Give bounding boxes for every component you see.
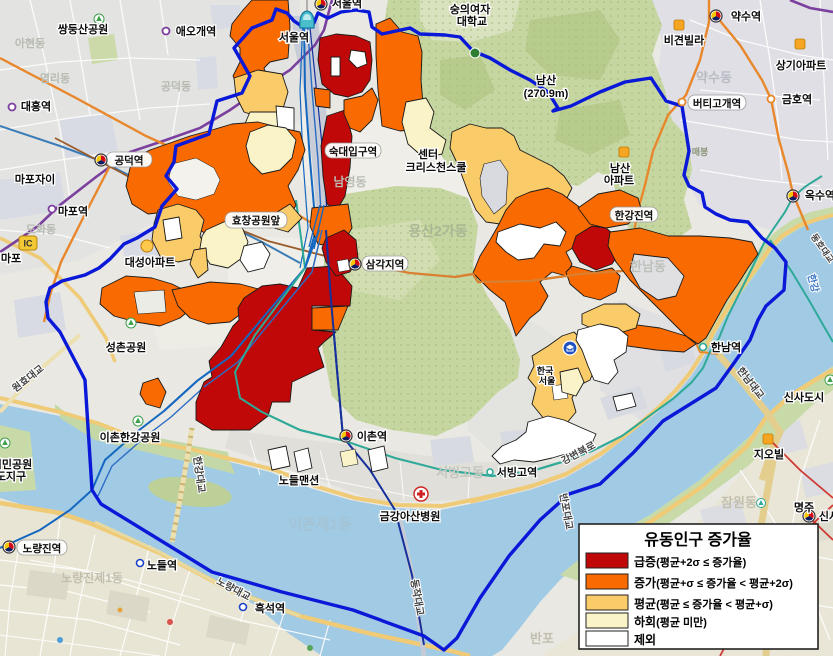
svg-text:서울역: 서울역	[279, 30, 309, 44]
svg-text:대흥역: 대흥역	[21, 99, 51, 113]
svg-text:삼각지역: 삼각지역	[366, 258, 405, 271]
svg-text:한남역: 한남역	[711, 340, 741, 354]
svg-text:애오개역: 애오개역	[176, 24, 216, 38]
svg-text:금호역: 금호역	[782, 92, 812, 106]
svg-text:크리스천스쿨: 크리스천스쿨	[406, 160, 467, 174]
svg-text:숭의여자: 숭의여자	[450, 2, 491, 16]
svg-text:옥수역: 옥수역	[805, 188, 833, 202]
svg-text:매봉: 매봉	[692, 146, 709, 157]
svg-text:명주: 명주	[794, 500, 814, 514]
svg-text:신사: 신사	[819, 509, 833, 523]
svg-text:노들맨션: 노들맨션	[279, 473, 319, 487]
svg-text:한강진역: 한강진역	[615, 209, 654, 222]
svg-text:급증(평균+2σ ≤ 증가율): 급증(평균+2σ ≤ 증가율)	[634, 555, 747, 569]
svg-text:노들역: 노들역	[147, 558, 177, 572]
svg-text:시민공원: 시민공원	[0, 457, 32, 471]
svg-text:마포: 마포	[1, 251, 21, 265]
svg-text:서울: 서울	[539, 375, 556, 386]
svg-text:대학교: 대학교	[457, 14, 487, 28]
svg-text:약수역: 약수역	[731, 9, 761, 23]
svg-text:마포자이: 마포자이	[15, 172, 55, 186]
svg-text:이촌제1동: 이촌제1동	[288, 516, 352, 533]
svg-text:하회(평균 미만): 하회(평균 미만)	[634, 614, 707, 629]
svg-text:센터: 센터	[418, 147, 438, 161]
svg-text:마포역: 마포역	[58, 204, 88, 218]
svg-text:서울역: 서울역	[332, 0, 362, 10]
svg-text:서빙고동: 서빙고동	[436, 465, 484, 480]
svg-text:한국: 한국	[537, 365, 554, 376]
svg-text:비견빌라: 비견빌라	[664, 33, 705, 47]
svg-text:쌍둥산공원: 쌍둥산공원	[58, 22, 109, 36]
svg-text:약수동: 약수동	[696, 70, 732, 85]
svg-text:남영동: 남영동	[333, 174, 366, 189]
svg-text:잠원동: 잠원동	[721, 495, 757, 510]
svg-text:이촌역: 이촌역	[357, 429, 387, 443]
svg-text:대성아파트: 대성아파트	[125, 255, 176, 269]
svg-text:이촌한강공원: 이촌한강공원	[100, 430, 161, 444]
svg-text:노량진제1동: 노량진제1동	[61, 570, 123, 585]
svg-text:공덕동: 공덕동	[161, 79, 191, 93]
svg-text:서빙고역: 서빙고역	[497, 465, 537, 479]
svg-text:유동인구 증가율: 유동인구 증가율	[644, 531, 752, 549]
svg-text:효창공원앞: 효창공원앞	[232, 214, 281, 227]
svg-text:아파트: 아파트	[604, 173, 634, 187]
svg-text:(270.9m): (270.9m)	[524, 88, 569, 100]
svg-text:IC: IC	[24, 239, 34, 249]
svg-text:도화동: 도화동	[26, 222, 56, 236]
svg-text:숙대입구역: 숙대입구역	[329, 145, 377, 158]
svg-text:버티고개역: 버티고개역	[693, 97, 741, 110]
svg-text:평균(평균 ≤ 증가율 < 평균+σ): 평균(평균 ≤ 증가율 < 평균+σ)	[634, 597, 773, 611]
svg-text:금강아산병원: 금강아산병원	[380, 509, 441, 523]
svg-text:공덕역: 공덕역	[115, 154, 144, 167]
svg-text:한남동: 한남동	[630, 259, 666, 274]
svg-text:신사도시: 신사도시	[784, 390, 824, 404]
svg-text:반포: 반포	[530, 631, 554, 646]
svg-text:흑석역: 흑석역	[255, 601, 285, 615]
svg-text:아현동: 아현동	[15, 36, 45, 50]
svg-text:제외: 제외	[634, 632, 656, 647]
svg-text:남산: 남산	[536, 73, 556, 87]
svg-text:성촌공원: 성촌공원	[106, 340, 146, 354]
svg-text:노량진역: 노량진역	[23, 542, 62, 555]
svg-text:상기아파트: 상기아파트	[776, 58, 827, 72]
svg-text:용산2가동: 용산2가동	[408, 223, 467, 239]
svg-text:도지구: 도지구	[0, 469, 26, 483]
svg-text:증가(평균+σ ≤ 증가율 < 평균+2σ): 증가(평균+σ ≤ 증가율 < 평균+2σ)	[634, 575, 793, 590]
svg-text:지오빌: 지오빌	[754, 447, 784, 461]
svg-text:염리동: 염리동	[40, 71, 70, 85]
svg-text:남산: 남산	[610, 161, 630, 175]
